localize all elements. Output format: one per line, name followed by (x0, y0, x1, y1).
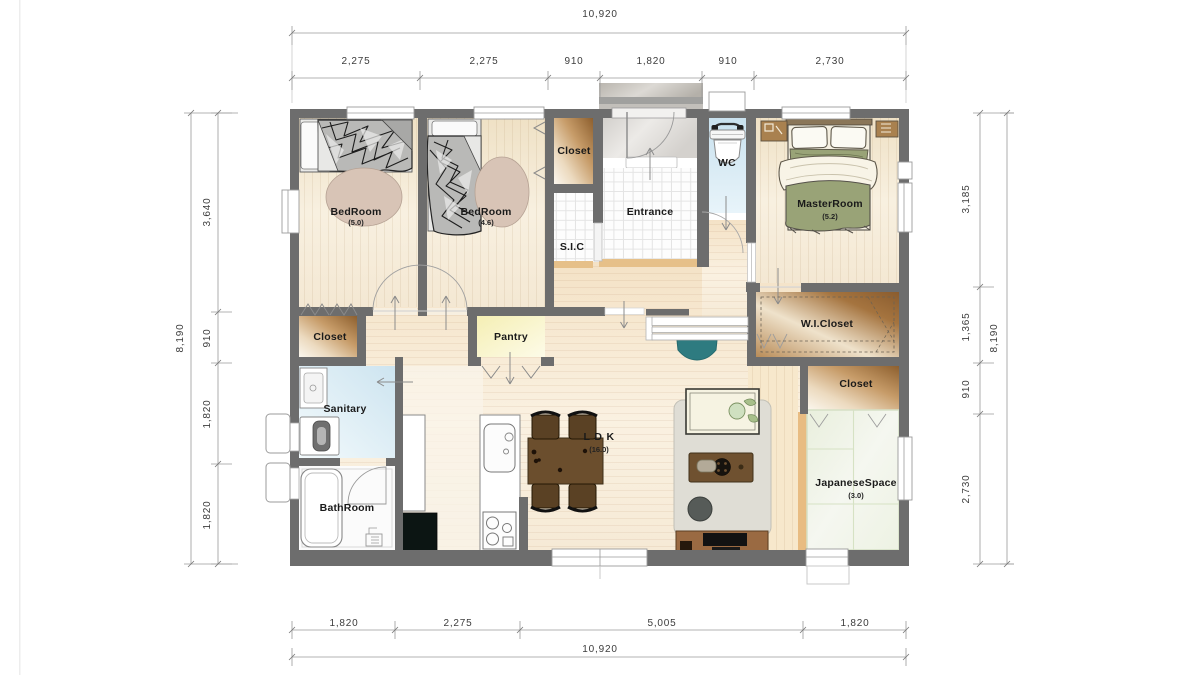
svg-text:910: 910 (718, 56, 737, 67)
svg-text:1,820: 1,820 (202, 399, 213, 428)
svg-text:1,820: 1,820 (329, 618, 358, 629)
svg-text:(5.0): (5.0) (348, 218, 364, 227)
svg-text:5,005: 5,005 (647, 618, 676, 629)
svg-text:2,275: 2,275 (469, 56, 498, 67)
svg-text:2,730: 2,730 (961, 474, 972, 503)
svg-text:1,820: 1,820 (202, 500, 213, 529)
svg-text:910: 910 (564, 56, 583, 67)
svg-text:1,365: 1,365 (961, 312, 972, 341)
svg-text:MasterRoom: MasterRoom (797, 198, 863, 210)
svg-text:910: 910 (202, 328, 213, 347)
svg-text:Sanitary: Sanitary (323, 403, 366, 415)
svg-text:8,190: 8,190 (989, 323, 1000, 352)
svg-text:Closet: Closet (557, 145, 591, 157)
svg-text:3,185: 3,185 (961, 184, 972, 213)
svg-text:BedRoom: BedRoom (331, 206, 382, 218)
svg-text:2,275: 2,275 (443, 618, 472, 629)
svg-text:Closet: Closet (839, 378, 873, 390)
svg-text:1,820: 1,820 (636, 56, 665, 67)
svg-text:S.I.C: S.I.C (560, 241, 585, 253)
svg-text:(16.0): (16.0) (589, 445, 609, 454)
svg-text:Closet: Closet (313, 331, 347, 343)
svg-text:10,920: 10,920 (582, 644, 617, 655)
svg-text:BathRoom: BathRoom (320, 502, 375, 514)
svg-text:8,190: 8,190 (175, 323, 186, 352)
svg-text:3,640: 3,640 (202, 197, 213, 226)
svg-text:(4.6): (4.6) (478, 218, 494, 227)
svg-text:1,820: 1,820 (840, 618, 869, 629)
svg-text:(3.0): (3.0) (848, 491, 864, 500)
svg-text:WC: WC (718, 157, 736, 169)
svg-text:2,730: 2,730 (815, 56, 844, 67)
svg-text:10,920: 10,920 (582, 9, 617, 20)
svg-text:BedRoom: BedRoom (461, 206, 512, 218)
svg-text:Entrance: Entrance (627, 206, 674, 218)
svg-text:W.I.Closet: W.I.Closet (801, 318, 853, 330)
svg-text:2,275: 2,275 (341, 56, 370, 67)
svg-text:(5.2): (5.2) (822, 212, 838, 221)
svg-text:LDK: LDK (583, 431, 618, 443)
svg-text:JapaneseSpace: JapaneseSpace (815, 477, 896, 489)
svg-text:910: 910 (961, 379, 972, 398)
svg-text:Pantry: Pantry (494, 331, 528, 343)
